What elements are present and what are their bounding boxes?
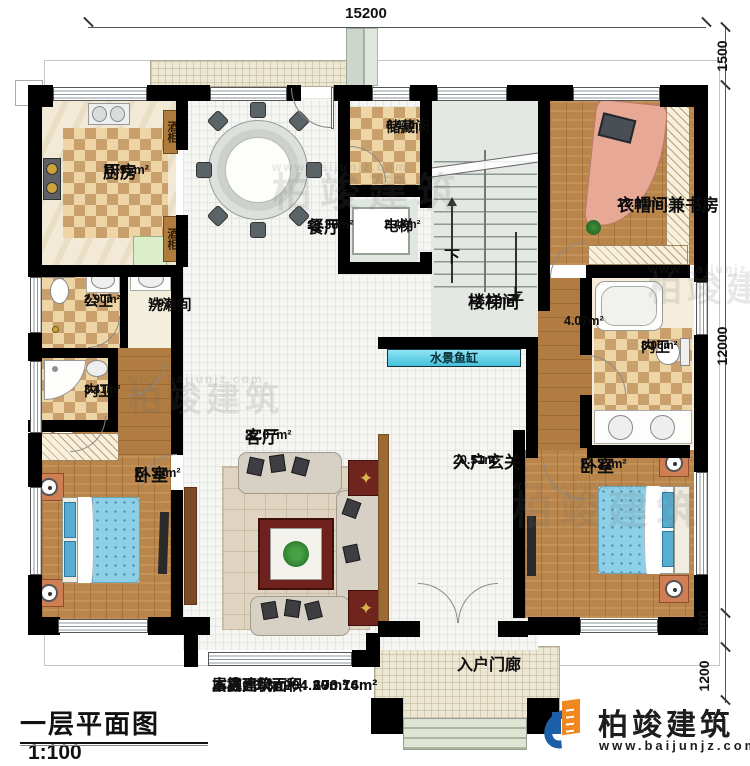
window (208, 652, 352, 666)
window (573, 87, 660, 101)
wall (338, 262, 432, 274)
logo-website: www.baijunjz.com (599, 738, 747, 753)
logo-building-small-icon (552, 712, 561, 734)
dining-chair (250, 222, 266, 238)
wall (420, 252, 432, 274)
sofa-pillow (284, 599, 301, 618)
window (210, 87, 287, 101)
bed-cushion (662, 492, 674, 528)
wall (694, 335, 708, 472)
dim-right-porch: 1200 (696, 655, 712, 697)
plant-icon (586, 220, 601, 235)
toilet-bowl-public (50, 278, 69, 304)
dining-area: 19.38m² (307, 218, 354, 232)
window (58, 619, 148, 633)
stat-value: 3.3m (253, 676, 287, 695)
shower-head-dot (52, 366, 58, 372)
sink-icon-right-2 (650, 415, 675, 440)
stair-up-label: 上 (508, 281, 524, 305)
bedroom-right-area: 14.22m² (580, 457, 627, 471)
wall (184, 617, 198, 667)
wall (338, 185, 432, 197)
wall (526, 337, 538, 458)
ensuite-right-area: 8.06m² (641, 340, 677, 353)
wall (366, 633, 380, 667)
drawing-title-block: 一层平面图 1:100 (20, 704, 210, 750)
bed-duvet-left (92, 497, 140, 583)
sofa-pillow (261, 601, 279, 620)
bathtub-inner (601, 286, 657, 326)
wardrobe-hatch-bottom (588, 245, 688, 265)
window (30, 487, 42, 575)
foyer-area: 20.51m² (453, 453, 500, 467)
bed-cushion (662, 531, 674, 567)
wall (171, 267, 183, 455)
wall (171, 490, 183, 620)
wall (28, 265, 176, 277)
bed-cushion (64, 502, 76, 538)
window (696, 472, 708, 575)
window (30, 277, 42, 333)
plant-icon-table (283, 541, 309, 567)
living-area: 32.07m² (245, 428, 292, 442)
wall (378, 621, 420, 637)
stair-divider (484, 150, 486, 292)
bedroom-left-area: 14.38m² (134, 466, 181, 480)
wall (498, 621, 528, 637)
stat-value: 204.20m² (283, 676, 347, 695)
title-underline (20, 742, 208, 746)
stat-line: 层高:3.3m (212, 676, 247, 695)
window (372, 87, 410, 101)
bed-duvet-right (598, 486, 648, 574)
wall (28, 617, 60, 635)
wall (586, 265, 690, 278)
washroom-area: 1.92m² (148, 298, 184, 311)
terrace-column-2 (364, 28, 378, 86)
dining-chair (250, 102, 266, 118)
bed-sheet-fold-right (644, 486, 660, 574)
tv-icon-right (527, 516, 536, 576)
bed-headboard-right (674, 486, 690, 574)
stove-burner (46, 163, 58, 175)
wall (338, 98, 350, 197)
stats-block: 本层建筑面积:196.74m² 本栋建筑面积:670.16m² 占地面积:204… (212, 676, 402, 756)
lamp-icon (40, 478, 58, 496)
dim-tick (83, 17, 94, 28)
bed-cushion (64, 541, 76, 577)
floor-drain-icon (52, 326, 59, 333)
door-leaf (331, 87, 334, 129)
dining-chair (196, 162, 212, 178)
terrace-column (346, 28, 364, 86)
bed-sheet-fold-left (78, 497, 94, 583)
stove-burner-2 (46, 182, 58, 194)
sofa-pillow (342, 544, 360, 564)
wall (28, 433, 42, 487)
toilet-icon-right (680, 338, 690, 366)
kitchen-sink-basin (92, 106, 107, 122)
terrace (150, 60, 374, 87)
wall (420, 98, 432, 208)
dim-right-step: 800 (695, 604, 711, 640)
wall (28, 85, 42, 277)
window (437, 87, 507, 101)
wall (580, 395, 592, 448)
window (580, 619, 658, 633)
floor-plan: 酒柜 酒柜 (0, 0, 750, 766)
wall (694, 85, 708, 282)
stat-label: 层高: (212, 677, 247, 694)
window (30, 361, 42, 433)
sink-icon-right-1 (608, 415, 633, 440)
dim-line-top (88, 27, 706, 28)
porch-name: 入户门廊 (457, 657, 521, 675)
storage-area: 3.41m² (386, 120, 422, 133)
wall (528, 617, 580, 635)
elevator-area: 2.43m² (384, 219, 420, 232)
sofa-pillow (269, 454, 286, 473)
foyer-divider (378, 434, 389, 632)
porch-steps (403, 718, 527, 750)
lamp-icon (665, 580, 683, 598)
fish-tank-label: 水景鱼缸 (430, 351, 478, 365)
public-bath-area: 2.90m² (84, 294, 120, 307)
company-logo: 柏竣建筑 www.baijunjz.com (546, 698, 746, 758)
dim-right-main: 12000 (714, 320, 730, 372)
wardrobe-hatch-right (666, 103, 690, 265)
window (53, 87, 147, 101)
sink-icon-ensuite-left (86, 360, 108, 377)
stair-down-label: 下 (444, 243, 460, 267)
wall (538, 98, 550, 311)
wall (378, 337, 538, 349)
hallway-area: 4.07m² (564, 314, 604, 328)
page-title: 一层平面图 (20, 709, 160, 739)
kitchen-rug (63, 128, 168, 238)
dim-right-upper: 1500 (714, 36, 730, 76)
ensuite-left-area: 3.41m² (84, 384, 120, 397)
dim-tick (701, 17, 712, 28)
dim-top: 15200 (330, 5, 402, 22)
window (696, 282, 708, 335)
dining-table-top (225, 137, 291, 203)
wall (120, 277, 128, 348)
tv-cabinet-left (184, 487, 197, 605)
fridge-icon (133, 236, 167, 266)
logo-building-icon (562, 699, 580, 736)
stair-arrow-down-head (447, 197, 457, 206)
lamp-icon (40, 584, 58, 602)
study-area: 12.91m² (617, 196, 664, 210)
dining-chair (306, 162, 322, 178)
wall (28, 348, 118, 358)
kitchen-sink-basin-2 (110, 106, 125, 122)
kitchen-area: 11.95m² (103, 163, 149, 177)
fish-tank: 水景鱼缸 (387, 349, 521, 367)
wall (176, 98, 188, 150)
wall (176, 215, 188, 267)
logo-icon (546, 700, 592, 756)
